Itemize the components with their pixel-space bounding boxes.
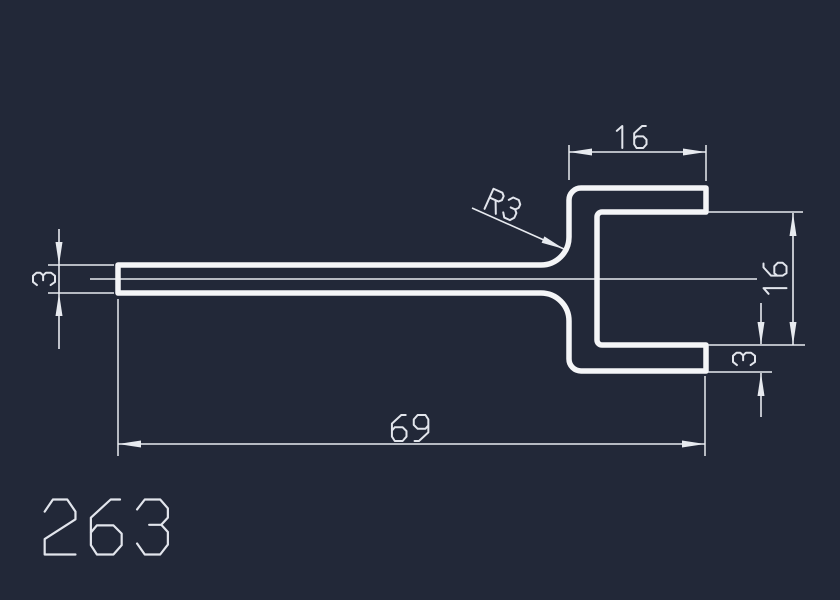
arrowhead-right bbox=[683, 149, 706, 156]
dimension-plate-thickness[interactable] bbox=[33, 229, 114, 349]
arrowhead-left bbox=[118, 441, 141, 448]
part-number-label[interactable] bbox=[45, 500, 168, 555]
dimension-bottom-flange-thickness[interactable] bbox=[708, 303, 772, 417]
arrowhead-right bbox=[682, 441, 705, 448]
arrowhead-up bbox=[758, 373, 765, 396]
dimension-overall-length[interactable] bbox=[118, 299, 705, 456]
cad-drawing-canvas bbox=[0, 0, 840, 600]
arrowhead-down bbox=[56, 242, 63, 265]
arrowhead-left bbox=[569, 149, 592, 156]
dimension-text-right-3[interactable] bbox=[733, 353, 755, 365]
arrowhead-down bbox=[758, 322, 765, 345]
arrowhead-up bbox=[790, 213, 797, 236]
dimension-top-flange-length[interactable] bbox=[569, 126, 706, 181]
dimension-text-left-3[interactable] bbox=[33, 273, 55, 285]
arrowhead-down bbox=[790, 322, 797, 345]
part-number-text bbox=[45, 500, 168, 555]
arrowhead-leader bbox=[542, 236, 564, 249]
dimension-text-69[interactable] bbox=[392, 415, 428, 441]
dimension-text-right-16[interactable] bbox=[764, 263, 787, 294]
dimension-text-top-16[interactable] bbox=[617, 126, 647, 148]
dimension-fillet-radius[interactable] bbox=[472, 189, 564, 249]
cad-viewport bbox=[0, 0, 840, 600]
arrowhead-up bbox=[56, 293, 63, 316]
